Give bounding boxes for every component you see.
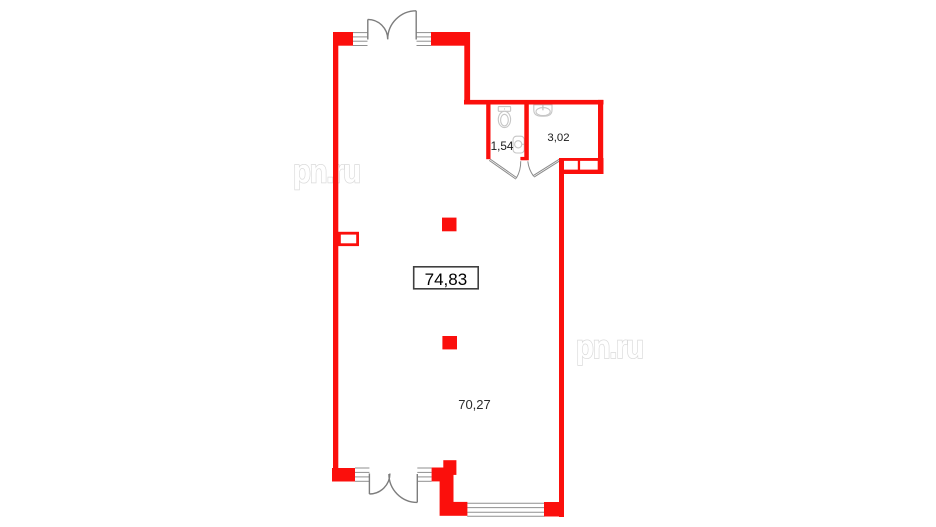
svg-text:1,54: 1,54 — [491, 140, 514, 153]
svg-text:70,27: 70,27 — [458, 397, 491, 412]
svg-text:pn.ru: pn.ru — [293, 153, 360, 190]
svg-text:3,02: 3,02 — [547, 132, 569, 144]
svg-text:74,83: 74,83 — [425, 270, 468, 289]
svg-text:pn.ru: pn.ru — [576, 328, 643, 365]
